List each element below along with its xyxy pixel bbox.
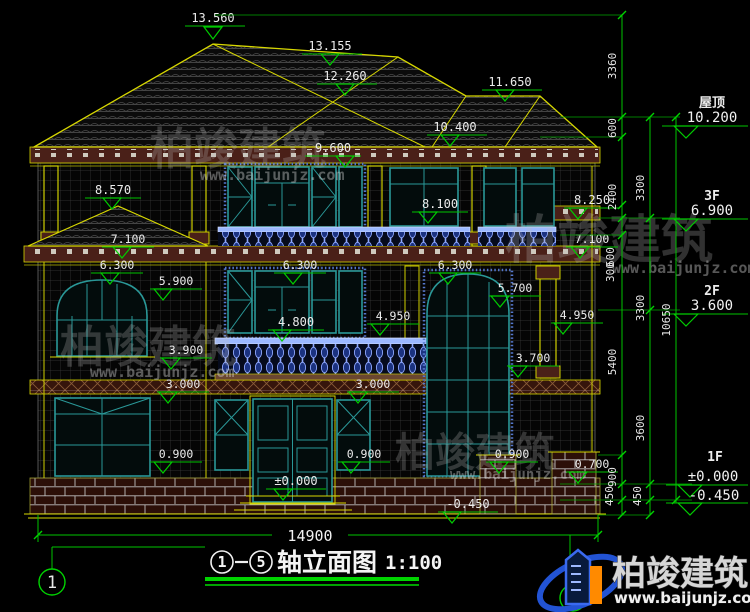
svg-text:-0.450: -0.450 bbox=[689, 488, 740, 504]
svg-text:2F: 2F bbox=[704, 284, 720, 299]
svg-text:3.600: 3.600 bbox=[691, 298, 733, 314]
svg-text:-0.450: -0.450 bbox=[446, 497, 489, 511]
balcony-balusters bbox=[218, 232, 470, 246]
watermark-url: www.baijunjz.com bbox=[200, 166, 345, 184]
drawing-scale: 1:100 bbox=[385, 552, 442, 574]
svg-text:±0.000: ±0.000 bbox=[274, 474, 317, 488]
svg-text:6.900: 6.900 bbox=[691, 203, 733, 219]
dim-label: 450 bbox=[631, 486, 644, 506]
svg-text:0.900: 0.900 bbox=[495, 447, 530, 461]
svg-text:12.260: 12.260 bbox=[323, 69, 366, 83]
dim-label: 2400 bbox=[606, 184, 619, 211]
logo-company-name: 柏竣建筑 bbox=[612, 554, 748, 594]
svg-text:8.570: 8.570 bbox=[95, 183, 131, 197]
dim-label: 450 bbox=[603, 486, 616, 506]
dim-label: 900 bbox=[606, 467, 619, 487]
watermark-url: www.baijunjz.com bbox=[90, 363, 235, 381]
svg-text:4.950: 4.950 bbox=[560, 308, 595, 322]
svg-text:6.300: 6.300 bbox=[283, 258, 318, 272]
svg-text:0.900: 0.900 bbox=[159, 447, 194, 461]
level-1f: 1F±0.000-0.450 bbox=[666, 450, 748, 515]
axis-end: 5 bbox=[256, 553, 265, 571]
svg-text:4.950: 4.950 bbox=[376, 309, 411, 323]
svg-text:3.000: 3.000 bbox=[356, 377, 391, 391]
svg-text:5.900: 5.900 bbox=[159, 274, 194, 288]
elevation-drawing: 柏竣建筑 www.baijunjz.com 柏竣建筑 www.baijunjz.… bbox=[0, 0, 750, 612]
cad-elevation-screenshot: 柏竣建筑 www.baijunjz.com 柏竣建筑 www.baijunjz.… bbox=[0, 0, 750, 612]
svg-text:13.560: 13.560 bbox=[191, 11, 234, 25]
svg-text:0.700: 0.700 bbox=[575, 457, 610, 471]
svg-text:3.700: 3.700 bbox=[516, 351, 551, 365]
dim-label: 600 bbox=[606, 118, 619, 138]
svg-text:8.250: 8.250 bbox=[574, 193, 610, 207]
svg-text:1F: 1F bbox=[707, 450, 723, 465]
svg-text:5.700: 5.700 bbox=[498, 281, 533, 295]
svg-text:6.300: 6.300 bbox=[438, 258, 473, 272]
axis-start: 1 bbox=[217, 553, 226, 571]
right-level-block: 屋顶10.200 3F6.900 2F3.600 1F±0.000-0.450 bbox=[662, 96, 748, 515]
svg-text:3.000: 3.000 bbox=[166, 377, 201, 391]
svg-text:3F: 3F bbox=[704, 189, 720, 204]
dim-label: 5400 bbox=[606, 349, 619, 376]
svg-text:屋顶: 屋顶 bbox=[699, 96, 725, 111]
title-underline-thick bbox=[205, 577, 419, 581]
svg-text:6.300: 6.300 bbox=[100, 258, 135, 272]
dim-label: 300 bbox=[604, 262, 617, 282]
dim-label: 3600 bbox=[634, 415, 647, 442]
svg-text:7.100: 7.100 bbox=[111, 232, 146, 246]
svg-text:8.100: 8.100 bbox=[422, 197, 458, 211]
window bbox=[339, 271, 362, 333]
dim-label: 3300 bbox=[634, 175, 647, 202]
svg-text:7.100: 7.100 bbox=[575, 232, 610, 246]
logo-building-orange bbox=[590, 566, 602, 604]
watermark-url: www.baijunjz.com bbox=[450, 467, 585, 483]
column-base bbox=[536, 366, 560, 378]
company-logo: 柏竣建筑 www.baijunjz.com bbox=[532, 546, 750, 612]
svg-text:10.400: 10.400 bbox=[433, 120, 476, 134]
dim-label: 3300 bbox=[634, 295, 647, 322]
svg-text:±0.000: ±0.000 bbox=[688, 469, 739, 485]
axis-bubble-number: 1 bbox=[47, 573, 57, 593]
dim-label: 3360 bbox=[606, 53, 619, 80]
window bbox=[312, 271, 336, 333]
balcony-rail bbox=[218, 227, 470, 232]
svg-text:3.900: 3.900 bbox=[169, 343, 204, 357]
level-2f: 2F3.600 bbox=[662, 284, 748, 326]
title-underline-thin bbox=[205, 584, 419, 586]
svg-text:0.900: 0.900 bbox=[347, 447, 382, 461]
svg-text:10.200: 10.200 bbox=[687, 110, 738, 126]
f2-divider-band bbox=[30, 380, 600, 394]
logo-building-icon bbox=[566, 550, 590, 604]
svg-text:11.650: 11.650 bbox=[488, 75, 531, 89]
level-marker: -0.450 bbox=[438, 497, 498, 523]
watermark-url: www.baijunjz.com bbox=[612, 259, 750, 277]
ground-line bbox=[24, 514, 606, 518]
logo-website: www.baijunjz.com bbox=[614, 589, 750, 607]
svg-text:13.155: 13.155 bbox=[308, 39, 351, 53]
svg-text:4.800: 4.800 bbox=[278, 315, 314, 329]
svg-text:9.600: 9.600 bbox=[315, 141, 351, 155]
title-block: 1 5 轴立面图 1:100 bbox=[205, 548, 442, 586]
overall-width-dim: 14900 bbox=[287, 527, 332, 545]
drawing-title: 轴立面图 bbox=[277, 548, 377, 577]
dim-label: 10650 bbox=[660, 303, 673, 336]
